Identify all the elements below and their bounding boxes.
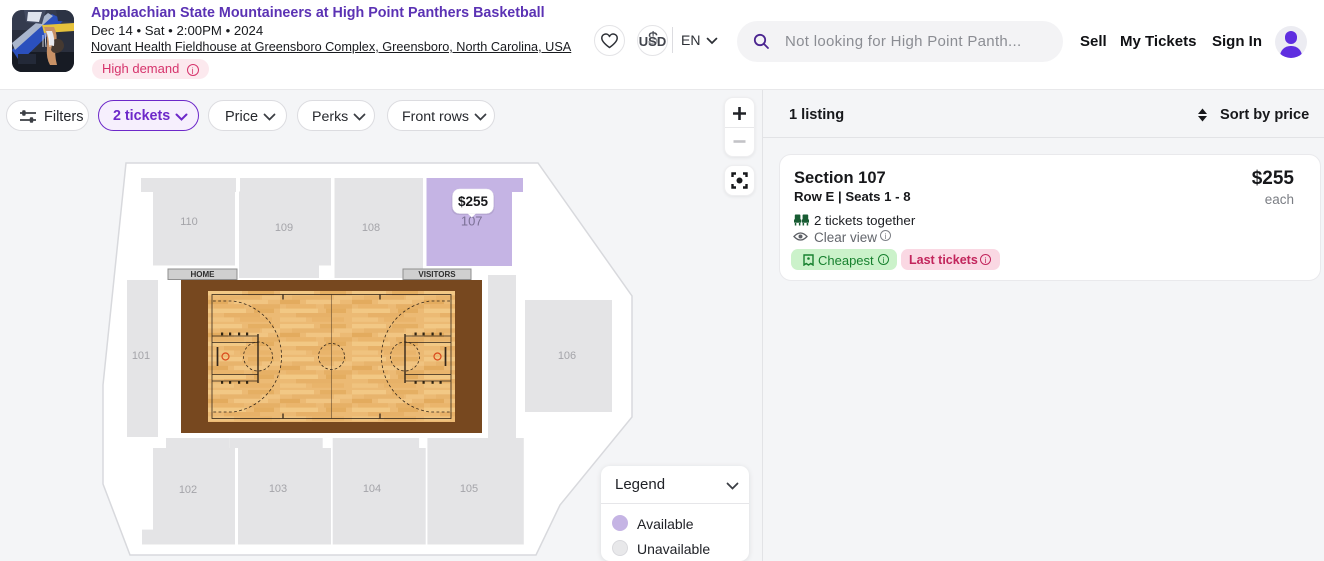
- svg-text:109: 109: [275, 222, 293, 234]
- svg-text:VISITORS: VISITORS: [418, 270, 456, 279]
- svg-text:105: 105: [460, 483, 478, 495]
- svg-text:108: 108: [362, 222, 380, 234]
- svg-text:103: 103: [269, 483, 287, 495]
- svg-text:HOME: HOME: [191, 270, 216, 279]
- svg-text:110: 110: [180, 216, 198, 228]
- svg-text:$255: $255: [458, 194, 489, 209]
- svg-text:106: 106: [558, 350, 576, 362]
- svg-text:104: 104: [363, 483, 381, 495]
- svg-text:101: 101: [132, 350, 150, 362]
- svg-text:102: 102: [179, 484, 197, 496]
